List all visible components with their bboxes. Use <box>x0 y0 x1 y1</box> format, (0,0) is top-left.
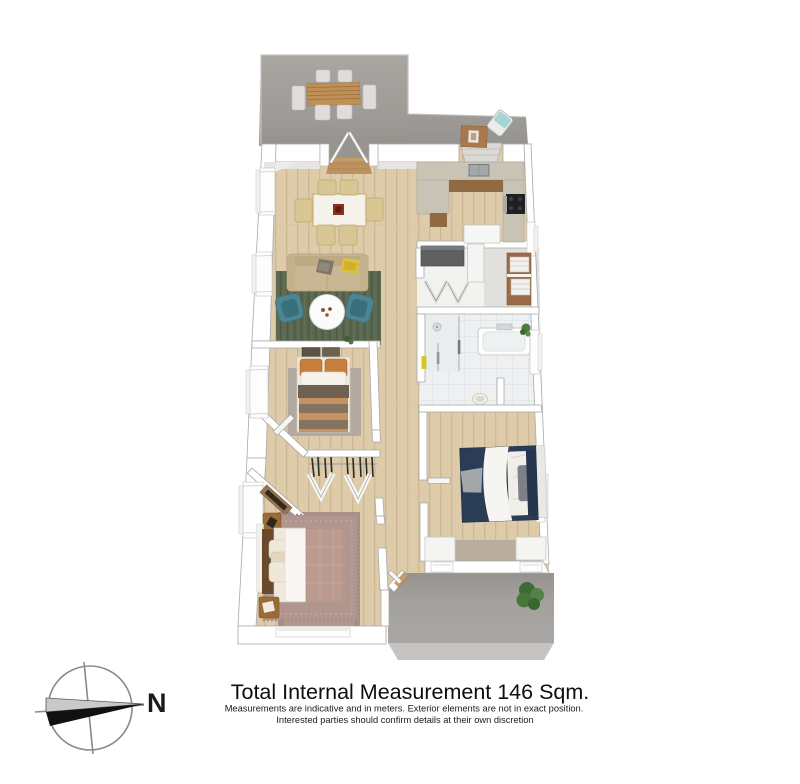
svg-text:N: N <box>147 688 167 718</box>
svg-text:Total Internal Measurement 146: Total Internal Measurement 146 Sqm. <box>231 680 590 704</box>
svg-text:Interested parties should conf: Interested parties should confirm detail… <box>276 715 533 725</box>
svg-text:Measurements are indicative an: Measurements are indicative and in meter… <box>225 704 584 714</box>
